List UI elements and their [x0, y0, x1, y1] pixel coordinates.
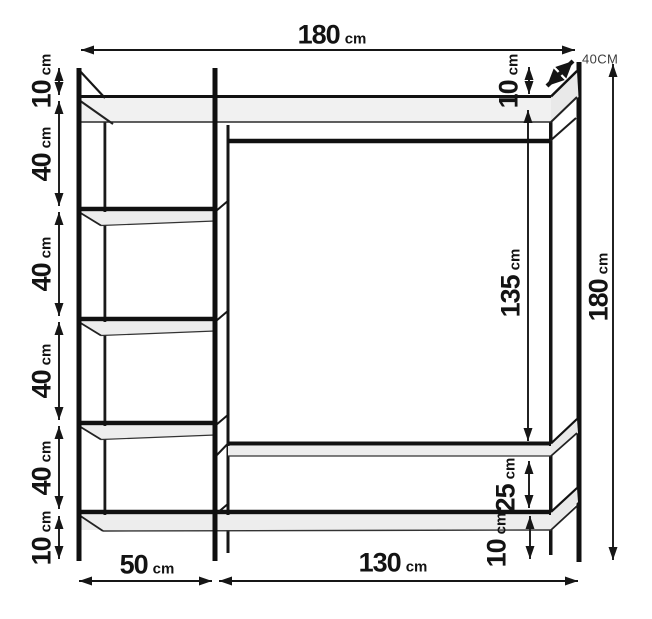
dim-unit: cm	[596, 253, 611, 275]
dim-label-top-width: 180 cm	[298, 22, 367, 49]
left-shelf-1	[79, 200, 229, 226]
dim-label-bottom-130: 130 cm	[359, 550, 428, 577]
dim-unit: cm	[345, 32, 367, 47]
dim-label-left-10-bottom: 10 cm	[29, 511, 56, 566]
dim-label-left-10-top: 10 cm	[29, 54, 56, 109]
left-shelf-2	[79, 310, 229, 336]
dim-unit: cm	[153, 562, 175, 577]
dim-label-left-40-3: 40 cm	[29, 344, 56, 399]
dim-unit: cm	[503, 458, 518, 480]
dimension-diagram: 180 cm 40CM 10 cm 40 cm 40 cm 40 cm 40 c…	[0, 0, 652, 619]
dim-label-right-height: 180 cm	[586, 253, 613, 322]
dim-value: 40	[29, 467, 56, 495]
dim-unit: cm	[39, 54, 54, 76]
dim-unit: cm	[494, 513, 509, 535]
dim-label-depth: 40CM	[582, 53, 618, 66]
dim-value: 180	[298, 22, 340, 49]
dim-label-inner-10-bottom: 10 cm	[484, 513, 511, 568]
dim-unit: cm	[506, 54, 521, 76]
dim-label-inner-25: 25 cm	[493, 458, 520, 513]
dimension-arrows	[59, 50, 613, 581]
dim-value: 10	[484, 539, 511, 567]
dim-value: 25	[493, 484, 520, 512]
dim-value: 40	[29, 263, 56, 291]
dim-label-bottom-50: 50 cm	[120, 552, 175, 579]
dim-value: 40	[29, 153, 56, 181]
wardrobe-line-drawing	[0, 0, 652, 619]
dim-value: 180	[586, 279, 613, 321]
dim-label-left-40-4: 40 cm	[29, 441, 56, 496]
right-lower-shelf	[215, 419, 578, 457]
front-posts	[77, 68, 218, 561]
dim-unit: cm	[39, 237, 54, 259]
dim-unit: cm	[508, 249, 523, 271]
dim-unit: cm	[406, 560, 428, 575]
dim-unit: cm	[39, 127, 54, 149]
dim-value: 40	[29, 370, 56, 398]
dim-value: 10	[29, 537, 56, 565]
dim-value: 10	[496, 80, 523, 108]
dim-value: 50	[120, 552, 148, 579]
dim-value: 10	[29, 80, 56, 108]
dim-label-inner-135: 135 cm	[498, 249, 525, 318]
dim-value: 130	[359, 550, 401, 577]
dim-label-inner-10-top: 10 cm	[496, 54, 523, 109]
dim-unit: cm	[39, 511, 54, 533]
dim-label-left-40-2: 40 cm	[29, 237, 56, 292]
dim-value: 135	[498, 275, 525, 317]
left-shelf-3	[79, 414, 229, 440]
dim-label-left-40-1: 40 cm	[29, 127, 56, 182]
dim-unit: cm	[39, 344, 54, 366]
dim-unit: cm	[39, 441, 54, 463]
